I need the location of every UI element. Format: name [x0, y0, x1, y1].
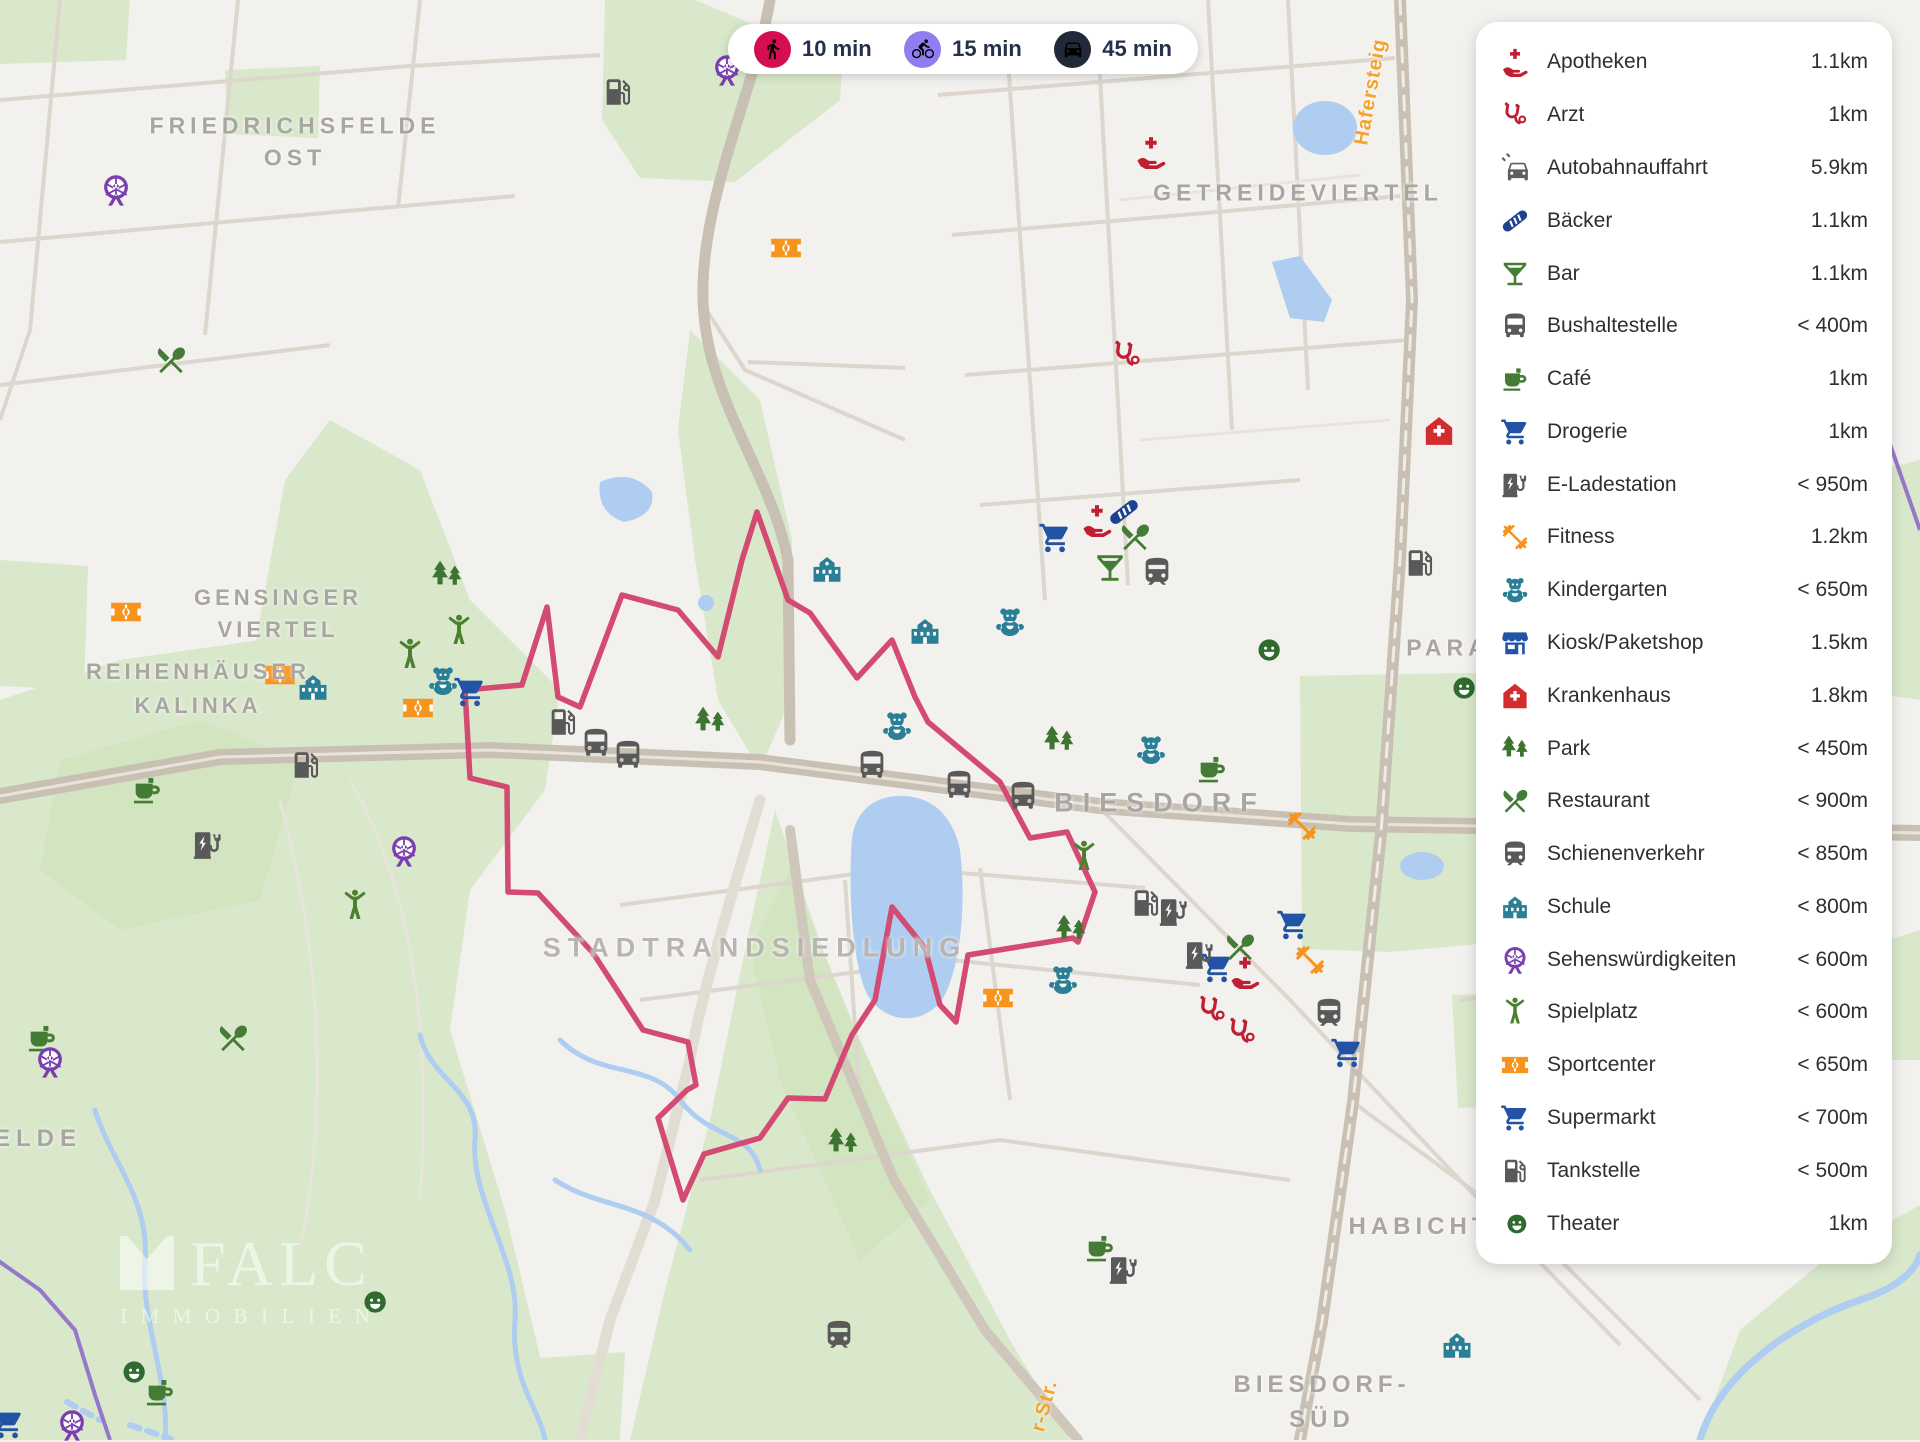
restaurant-icon	[216, 1021, 250, 1055]
amenity-row: Tankstelle < 500m	[1500, 1156, 1868, 1186]
map-poi-dumbbell	[1285, 809, 1319, 843]
figure-icon	[393, 638, 427, 672]
map-poi-ferris	[99, 173, 133, 207]
map-poi-masks	[1445, 671, 1479, 705]
stetho-icon	[1500, 100, 1530, 130]
district-label: ELDE	[0, 1125, 82, 1153]
amenity-row: Schule < 800m	[1500, 892, 1868, 922]
stetho-icon	[1110, 338, 1144, 372]
map-poi-sport	[401, 691, 435, 725]
ferris-icon	[99, 173, 133, 207]
bus-icon	[1500, 311, 1530, 341]
sport-icon	[401, 691, 435, 725]
amenity-label: Theater	[1547, 1212, 1619, 1236]
amenity-label: E-Ladestation	[1547, 473, 1677, 497]
kiosk-icon	[1500, 628, 1530, 658]
map-poi-coffee	[143, 1375, 177, 1409]
amenity-distance: < 500m	[1797, 1159, 1868, 1183]
amenity-distance: < 600m	[1797, 1000, 1868, 1024]
amenity-label: Fitness	[1547, 525, 1615, 549]
train-icon	[1500, 839, 1530, 869]
amenity-distance: 1.2km	[1811, 525, 1868, 549]
watermark-brand: FALC	[190, 1236, 373, 1292]
map-poi-martini	[1093, 551, 1127, 585]
map-poi-bus	[855, 748, 889, 782]
map-poi-school	[1440, 1328, 1474, 1362]
map-poi-sport	[109, 595, 143, 629]
bike-mode-icon	[904, 31, 941, 68]
sport-icon	[1500, 1050, 1530, 1080]
amenity-label: Restaurant	[1547, 789, 1650, 813]
map-poi-cart	[453, 675, 487, 709]
sport-icon	[769, 231, 803, 265]
ev-icon	[1157, 895, 1191, 929]
amenities-panel: Apotheken 1.1km Arzt 1km Autobahnauffahr…	[1476, 22, 1892, 1264]
coffee-icon	[1500, 364, 1530, 394]
carside-icon	[1500, 153, 1530, 183]
amenity-row: Bäcker 1.1km	[1500, 206, 1868, 236]
amenity-label: Park	[1547, 737, 1590, 761]
amenity-label: Spielplatz	[1547, 1000, 1638, 1024]
masks-icon	[1445, 671, 1479, 705]
amenity-label: Drogerie	[1547, 420, 1628, 444]
trees-icon	[826, 1126, 860, 1160]
amenity-row: Kiosk/Paketshop 1.5km	[1500, 628, 1868, 658]
stetho-icon	[1225, 1015, 1259, 1049]
map-poi-teddy	[1134, 733, 1168, 767]
cart-icon	[1500, 1103, 1530, 1133]
district-label: KALINKA	[135, 693, 262, 719]
map-poi-restaurant	[216, 1021, 250, 1055]
stetho-icon	[1500, 100, 1530, 130]
teddy-icon	[1500, 575, 1530, 605]
ferris-icon	[387, 834, 421, 868]
map-poi-school	[908, 614, 942, 648]
map-poi-sport	[769, 231, 803, 265]
ferris-icon	[55, 1408, 89, 1442]
trees-icon	[1500, 734, 1530, 764]
map-poi-ev	[1107, 1253, 1141, 1287]
bus-icon	[579, 726, 613, 760]
amenity-distance: 1km	[1828, 1212, 1868, 1236]
amenity-row: Supermarkt < 700m	[1500, 1103, 1868, 1133]
sport-icon	[981, 981, 1015, 1015]
restaurant-icon	[1118, 520, 1152, 554]
amenity-distance: < 850m	[1797, 842, 1868, 866]
map-poi-ev	[1157, 895, 1191, 929]
hospital-icon	[1422, 414, 1456, 448]
amenity-distance: 1km	[1828, 367, 1868, 391]
apotheke-icon	[1500, 47, 1530, 77]
amenity-row: Arzt 1km	[1500, 100, 1868, 130]
map-poi-trees	[826, 1126, 860, 1160]
masks-icon	[1250, 633, 1284, 667]
amenity-row: E-Ladestation < 950m	[1500, 470, 1868, 500]
trees-icon	[693, 705, 727, 739]
amenity-row: Fitness 1.2km	[1500, 522, 1868, 552]
amenity-distance: < 900m	[1797, 789, 1868, 813]
map-poi-train	[1140, 555, 1174, 589]
figure-icon	[1067, 840, 1101, 874]
coffee-icon	[130, 773, 164, 807]
cart-icon	[1500, 417, 1530, 447]
teddy-icon	[1046, 963, 1080, 997]
map-poi-teddy	[880, 709, 914, 743]
bread-icon	[1500, 206, 1530, 236]
kiosk-icon	[1500, 628, 1530, 658]
teddy-icon	[880, 709, 914, 743]
district-label: FRIEDRICHSFELDE	[150, 113, 441, 140]
apotheke-icon	[1500, 47, 1530, 77]
travel-mode-chip[interactable]: 15 min	[904, 31, 1022, 68]
cart-icon	[1500, 417, 1530, 447]
amenity-distance: 1.1km	[1811, 262, 1868, 286]
amenity-label: Kiosk/Paketshop	[1547, 631, 1703, 655]
bus-icon	[611, 738, 645, 772]
map-poi-ev	[191, 828, 225, 862]
amenity-row: Café 1km	[1500, 364, 1868, 394]
map-poi-apotheke	[1134, 135, 1168, 169]
figure-icon	[1500, 997, 1530, 1027]
district-label: BIESDORF-	[1234, 1371, 1411, 1399]
train-icon	[1500, 839, 1530, 869]
cart-icon	[1038, 521, 1072, 555]
cart-icon	[1330, 1036, 1364, 1070]
figure-icon	[338, 889, 372, 923]
amenity-label: Bushaltestelle	[1547, 314, 1678, 338]
stetho-icon	[1195, 993, 1229, 1027]
fuel-icon	[1500, 1156, 1530, 1186]
map-poi-cart	[0, 1407, 25, 1441]
teddy-icon	[993, 605, 1027, 639]
amenity-label: Krankenhaus	[1547, 684, 1671, 708]
ferris-icon	[33, 1045, 67, 1079]
amenity-label: Supermarkt	[1547, 1106, 1656, 1130]
amenity-row: Autobahnauffahrt 5.9km	[1500, 153, 1868, 183]
trees-icon	[430, 559, 464, 593]
martini-icon	[1500, 259, 1530, 289]
trees-icon	[1054, 913, 1088, 947]
ev-icon	[1107, 1253, 1141, 1287]
amenity-row: Schienenverkehr < 850m	[1500, 839, 1868, 869]
amenity-distance: < 400m	[1797, 314, 1868, 338]
dumbbell-icon	[1500, 522, 1530, 552]
district-label: HABICHT	[1349, 1213, 1492, 1241]
school-icon	[1500, 892, 1530, 922]
bread-icon	[1500, 206, 1530, 236]
map-poi-cart	[1330, 1036, 1364, 1070]
amenity-distance: < 600m	[1797, 948, 1868, 972]
amenity-distance: < 650m	[1797, 578, 1868, 602]
map-poi-figure	[393, 638, 427, 672]
masks-icon	[1500, 1209, 1530, 1239]
amenity-label: Sportcenter	[1547, 1053, 1656, 1077]
sport-icon	[1500, 1050, 1530, 1080]
amenity-row: Apotheken 1.1km	[1500, 47, 1868, 77]
amenity-distance: 1km	[1828, 420, 1868, 444]
train-icon	[822, 1318, 856, 1352]
map-poi-restaurant	[1118, 520, 1152, 554]
amenity-label: Bar	[1547, 262, 1580, 286]
district-label: REIHENHÄUSER	[86, 659, 310, 685]
teddy-icon	[1134, 733, 1168, 767]
ev-icon	[1183, 938, 1217, 972]
school-icon	[908, 614, 942, 648]
cart-icon	[1500, 1103, 1530, 1133]
teddy-icon	[1500, 575, 1530, 605]
amenity-label: Sehenswürdigkeiten	[1547, 948, 1736, 972]
walk-mode-icon	[754, 31, 791, 68]
train-icon	[1140, 555, 1174, 589]
map-poi-ev	[1183, 938, 1217, 972]
amenity-label: Apotheken	[1547, 50, 1647, 74]
school-icon	[1500, 892, 1530, 922]
cart-icon	[453, 675, 487, 709]
map-poi-fuel	[1403, 546, 1437, 580]
map-poi-figure	[338, 889, 372, 923]
amenity-distance: 1.1km	[1811, 50, 1868, 74]
amenity-row: Park < 450m	[1500, 734, 1868, 764]
amenity-row: Sehenswürdigkeiten < 600m	[1500, 945, 1868, 975]
amenity-label: Kindergarten	[1547, 578, 1667, 602]
map-poi-teddy	[1046, 963, 1080, 997]
bus-icon	[855, 748, 889, 782]
amenity-row: Bushaltestelle < 400m	[1500, 311, 1868, 341]
map-poi-figure	[1067, 840, 1101, 874]
cart-icon	[1276, 908, 1310, 942]
coffee-icon	[1500, 364, 1530, 394]
martini-icon	[1093, 551, 1127, 585]
coffee-icon	[143, 1375, 177, 1409]
dumbbell-icon	[1293, 943, 1327, 977]
watermark-subtitle: IMMOBILIEN	[120, 1304, 383, 1329]
cart-icon	[0, 1407, 25, 1441]
map-poi-coffee	[1195, 752, 1229, 786]
bus-icon	[1006, 779, 1040, 813]
map-poi-bus	[942, 768, 976, 802]
map-poi-teddy	[993, 605, 1027, 639]
map-poi-train	[822, 1318, 856, 1352]
district-label: OST	[264, 145, 326, 172]
amenity-distance: < 800m	[1797, 895, 1868, 919]
map-poi-stetho	[1110, 338, 1144, 372]
amenity-label: Autobahnauffahrt	[1547, 156, 1708, 180]
figure-icon	[1500, 997, 1530, 1027]
amenity-distance: 1.1km	[1811, 209, 1868, 233]
ev-icon	[1500, 470, 1530, 500]
ev-icon	[1500, 470, 1530, 500]
trees-icon	[1042, 724, 1076, 758]
map-poi-trees	[430, 559, 464, 593]
travel-mode-label: 45 min	[1102, 36, 1172, 62]
bus-icon	[1500, 311, 1530, 341]
map-poi-sport	[981, 981, 1015, 1015]
amenity-label: Tankstelle	[1547, 1159, 1640, 1183]
restaurant-icon	[1500, 786, 1530, 816]
ferris-icon	[1500, 945, 1530, 975]
map-poi-figure	[442, 614, 476, 648]
map-poi-ferris	[33, 1045, 67, 1079]
brand-watermark: FALC IMMOBILIEN	[120, 1236, 383, 1329]
map-poi-stetho	[1225, 1015, 1259, 1049]
amenity-distance: 1km	[1828, 103, 1868, 127]
amenity-distance: 5.9km	[1811, 156, 1868, 180]
car-mode-icon	[1054, 31, 1091, 68]
sport-icon	[109, 595, 143, 629]
apotheke-icon	[1228, 955, 1262, 989]
map-poi-apotheke	[1228, 955, 1262, 989]
fuel-icon	[289, 748, 323, 782]
hospital-icon	[1500, 681, 1530, 711]
amenity-row: Bar 1.1km	[1500, 259, 1868, 289]
amenity-distance: < 650m	[1797, 1053, 1868, 1077]
map-poi-bus	[579, 726, 613, 760]
hospital-icon	[1500, 681, 1530, 711]
map-poi-ferris	[55, 1408, 89, 1442]
map-poi-restaurant	[154, 343, 188, 377]
amenity-row: Krankenhaus 1.8km	[1500, 681, 1868, 711]
district-label: GETREIDEVIERTEL	[1153, 180, 1443, 207]
map-poi-train	[1312, 996, 1346, 1030]
map-poi-dumbbell	[1293, 943, 1327, 977]
amenity-row: Restaurant < 900m	[1500, 786, 1868, 816]
amenity-distance: < 700m	[1797, 1106, 1868, 1130]
amenity-row: Drogerie 1km	[1500, 417, 1868, 447]
dumbbell-icon	[1285, 809, 1319, 843]
school-icon	[1440, 1328, 1474, 1362]
amenity-label: Schienenverkehr	[1547, 842, 1705, 866]
map-poi-cart	[1038, 521, 1072, 555]
restaurant-icon	[154, 343, 188, 377]
amenity-distance: < 450m	[1797, 737, 1868, 761]
map-poi-bus	[611, 738, 645, 772]
bus-icon	[942, 768, 976, 802]
map-poi-hospital	[1422, 414, 1456, 448]
school-icon	[810, 552, 844, 586]
masks-icon	[1500, 1209, 1530, 1239]
map-poi-fuel	[289, 748, 323, 782]
amenity-row: Spielplatz < 600m	[1500, 997, 1868, 1027]
trees-icon	[1500, 734, 1530, 764]
travel-mode-label: 15 min	[952, 36, 1022, 62]
amenity-row: Kindergarten < 650m	[1500, 575, 1868, 605]
dumbbell-icon	[1500, 522, 1530, 552]
martini-icon	[1500, 259, 1530, 289]
amenity-label: Bäcker	[1547, 209, 1612, 233]
travel-mode-label: 10 min	[802, 36, 872, 62]
map-poi-fuel	[546, 705, 580, 739]
amenity-label: Café	[1547, 367, 1591, 391]
amenity-label: Schule	[1547, 895, 1611, 919]
coffee-icon	[1195, 752, 1229, 786]
ev-icon	[191, 828, 225, 862]
map-poi-cart	[1276, 908, 1310, 942]
ferris-icon	[1500, 945, 1530, 975]
train-icon	[1312, 996, 1346, 1030]
amenity-row: Theater 1km	[1500, 1209, 1868, 1239]
district-label: STADTRANDSIEDLUNG	[543, 933, 968, 964]
map-poi-trees	[1054, 913, 1088, 947]
amenity-distance: < 950m	[1797, 473, 1868, 497]
map-poi-coffee	[130, 773, 164, 807]
restaurant-icon	[1500, 786, 1530, 816]
amenity-row: Sportcenter < 650m	[1500, 1050, 1868, 1080]
amenity-distance: 1.8km	[1811, 684, 1868, 708]
map-poi-masks	[1250, 633, 1284, 667]
fuel-icon	[1500, 1156, 1530, 1186]
map-poi-school	[810, 552, 844, 586]
district-label: GENSINGER	[194, 585, 362, 611]
map-poi-bus	[1006, 779, 1040, 813]
district-label: BIESDORF	[1054, 788, 1266, 819]
district-label: VIERTEL	[218, 617, 339, 643]
map-poi-stetho	[1195, 993, 1229, 1027]
map-poi-fuel	[601, 75, 635, 109]
apotheke-icon	[1134, 135, 1168, 169]
fuel-icon	[546, 705, 580, 739]
figure-icon	[442, 614, 476, 648]
map-poi-ferris	[387, 834, 421, 868]
amenity-label: Arzt	[1547, 103, 1584, 127]
carside-icon	[1500, 153, 1530, 183]
map-poi-trees	[1042, 724, 1076, 758]
district-label: SÜD	[1289, 1406, 1355, 1434]
fuel-icon	[601, 75, 635, 109]
falc-logo-icon	[120, 1236, 174, 1290]
travel-time-pill: 10 min 15 min 45 min	[728, 24, 1198, 74]
map-poi-trees	[693, 705, 727, 739]
amenity-distance: 1.5km	[1811, 631, 1868, 655]
fuel-icon	[1403, 546, 1437, 580]
travel-mode-chip[interactable]: 10 min	[754, 31, 872, 68]
travel-mode-chip[interactable]: 45 min	[1054, 31, 1172, 68]
